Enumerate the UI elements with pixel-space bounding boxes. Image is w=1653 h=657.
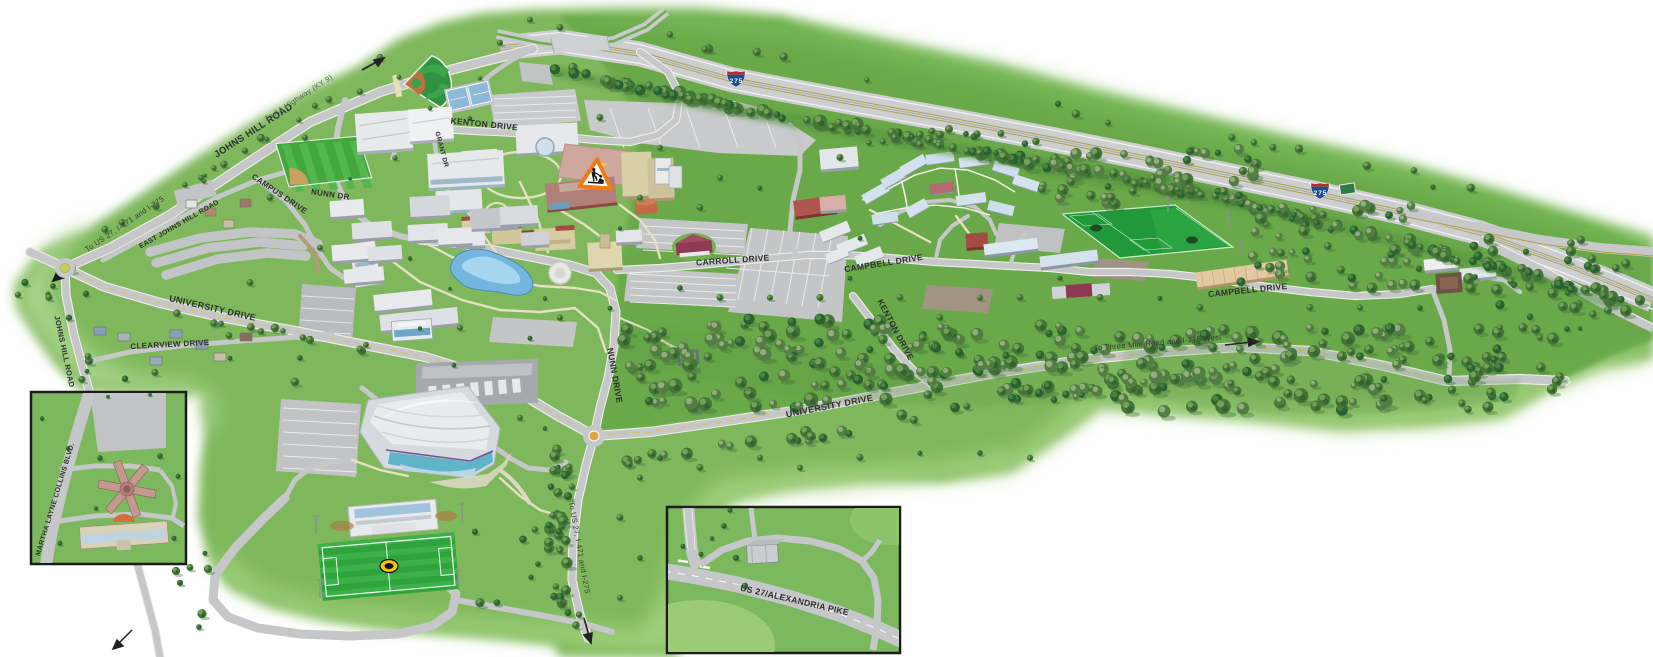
svg-text:275: 275 [1314, 190, 1327, 197]
svg-text:275: 275 [730, 78, 743, 85]
